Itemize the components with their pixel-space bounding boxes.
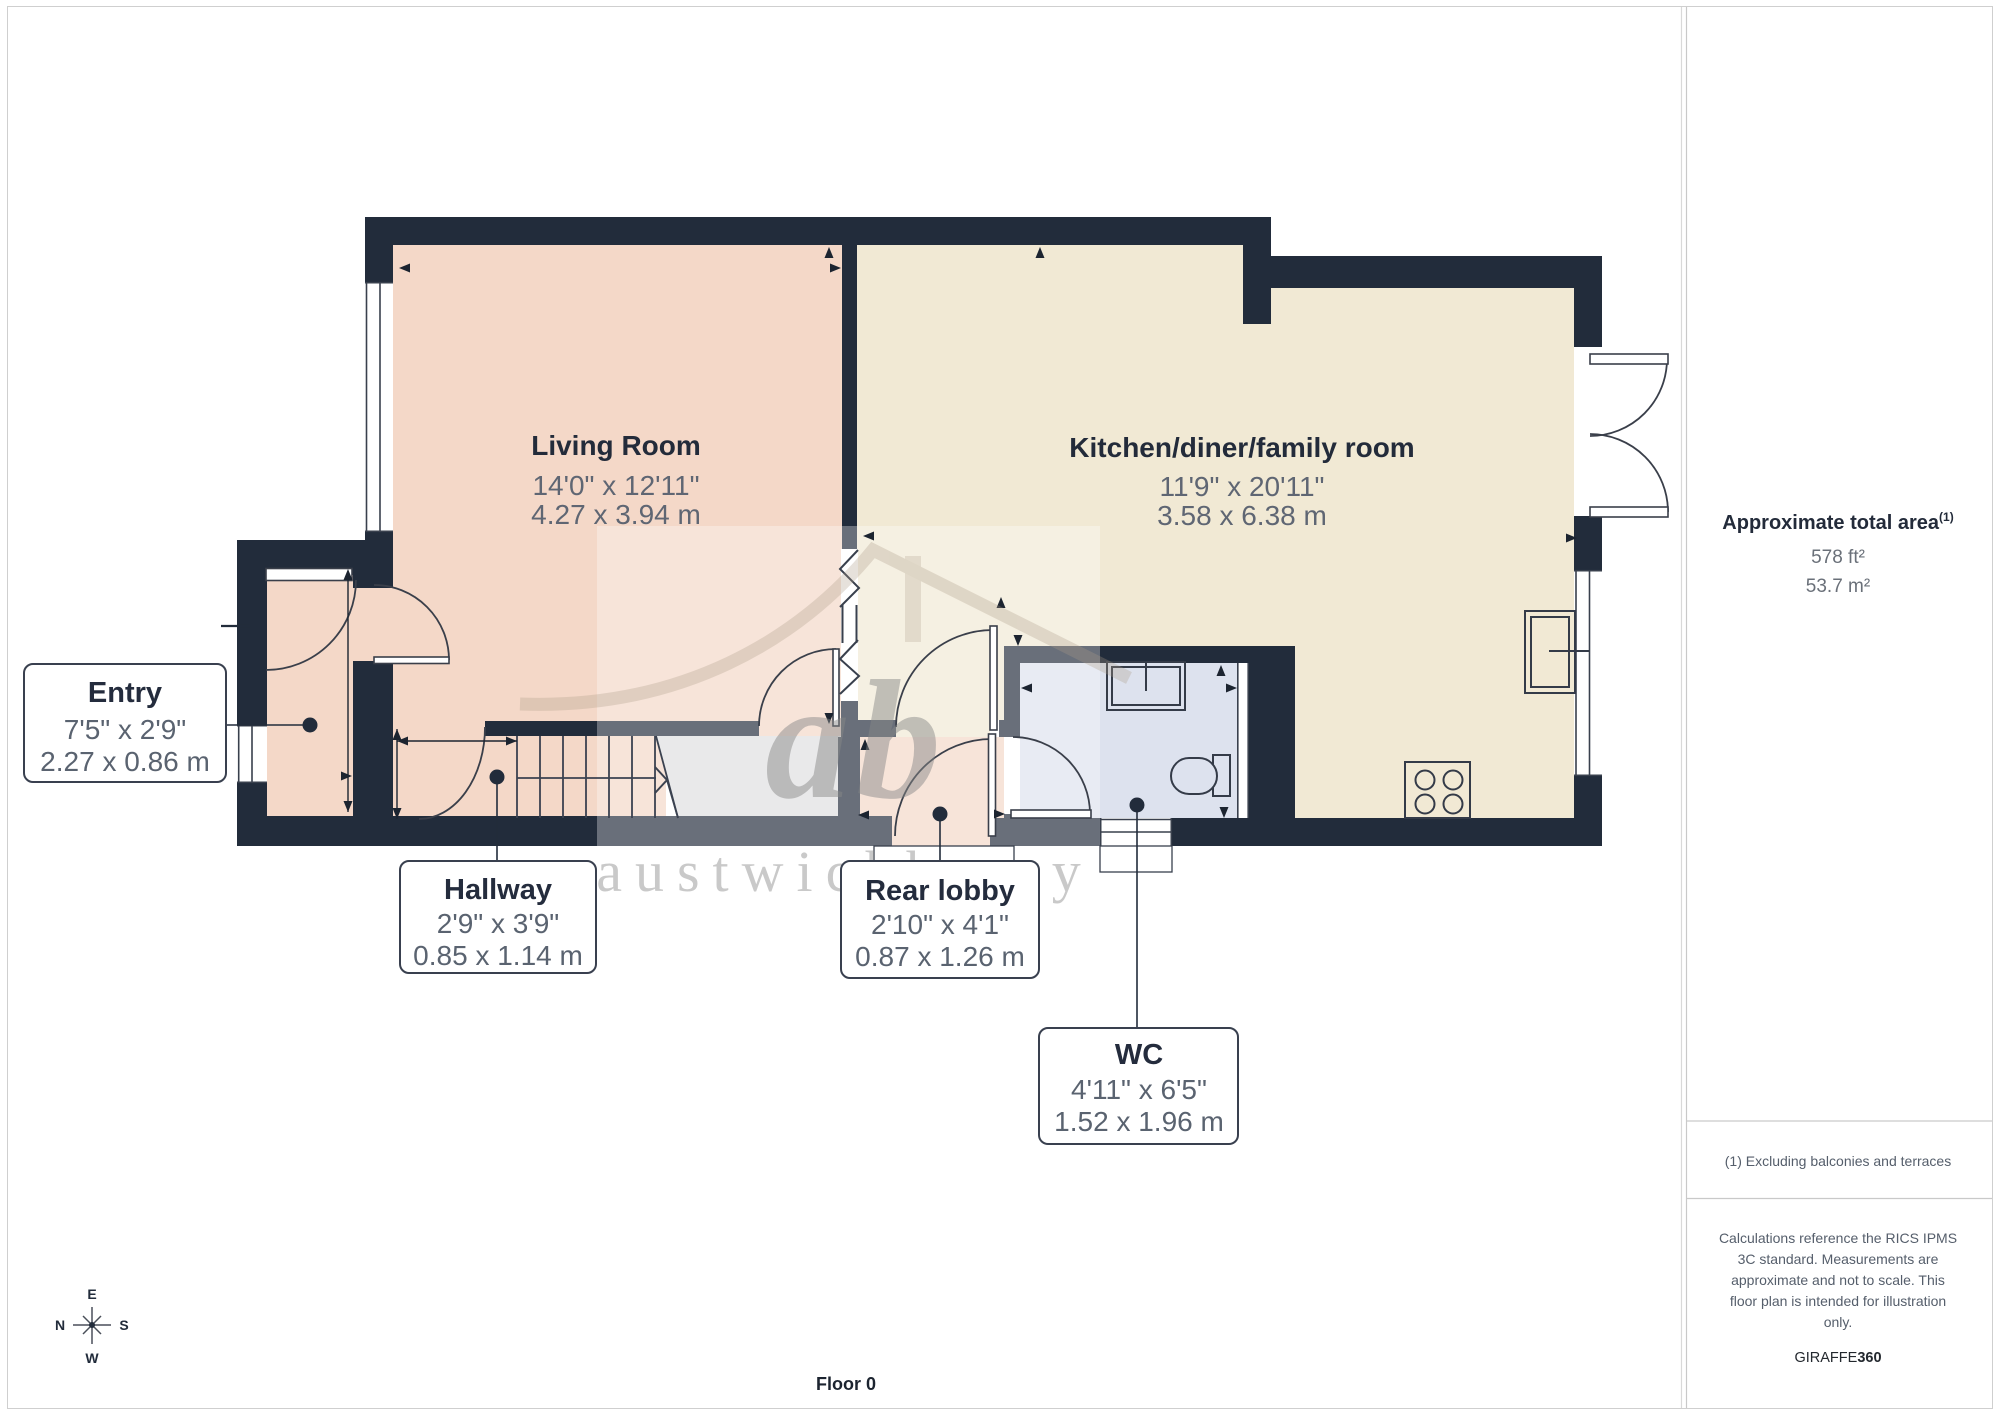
svg-text:4'11" x 6'5": 4'11" x 6'5" [1071,1074,1207,1105]
svg-text:0.85 x 1.14 m: 0.85 x 1.14 m [413,940,583,971]
svg-text:7'5" x 2'9": 7'5" x 2'9" [64,714,186,745]
svg-text:2'9" x 3'9": 2'9" x 3'9" [437,908,559,939]
svg-text:11'9" x 20'11": 11'9" x 20'11" [1160,471,1325,502]
svg-text:GIRAFFE360: GIRAFFE360 [1794,1350,1881,1366]
svg-text:3.58 x 6.38 m: 3.58 x 6.38 m [1157,500,1327,531]
svg-text:(1) Excluding balconies and te: (1) Excluding balconies and terraces [1725,1153,1951,1169]
svg-text:4.27 x 3.94 m: 4.27 x 3.94 m [531,499,701,530]
svg-text:WC: WC [1115,1039,1163,1071]
svg-text:Floor 0: Floor 0 [816,1374,876,1394]
svg-text:2.27 x 0.86 m: 2.27 x 0.86 m [40,746,210,777]
svg-text:approximate and not to scale.: approximate and not to scale. This [1731,1272,1945,1288]
svg-text:floor plan is intended for ill: floor plan is intended for illustration [1730,1293,1946,1309]
svg-text:Entry: Entry [88,677,162,709]
svg-text:53.7 m²: 53.7 m² [1806,576,1870,597]
svg-text:ab: ab [765,646,947,834]
svg-text:Living Room: Living Room [531,430,701,461]
svg-text:Kitchen/diner/family room: Kitchen/diner/family room [1069,432,1414,463]
svg-text:2'10" x 4'1": 2'10" x 4'1" [871,909,1009,940]
svg-text:1.52 x 1.96 m: 1.52 x 1.96 m [1054,1106,1224,1137]
svg-text:N: N [55,1317,65,1333]
svg-text:578 ft²: 578 ft² [1811,547,1865,568]
svg-text:Calculations reference the RIC: Calculations reference the RICS IPMS [1719,1230,1957,1246]
svg-text:3C standard. Measurements are: 3C standard. Measurements are [1738,1251,1939,1267]
svg-text:Rear lobby: Rear lobby [865,875,1015,907]
svg-text:E: E [87,1286,96,1302]
svg-text:Hallway: Hallway [444,874,552,906]
svg-text:W: W [85,1350,99,1366]
svg-text:Approximate total area(1): Approximate total area(1) [1722,510,1953,534]
svg-text:0.87 x 1.26 m: 0.87 x 1.26 m [855,941,1025,972]
svg-text:only.: only. [1824,1314,1853,1330]
svg-text:14'0" x 12'11": 14'0" x 12'11" [532,470,699,501]
svg-text:S: S [119,1317,128,1333]
